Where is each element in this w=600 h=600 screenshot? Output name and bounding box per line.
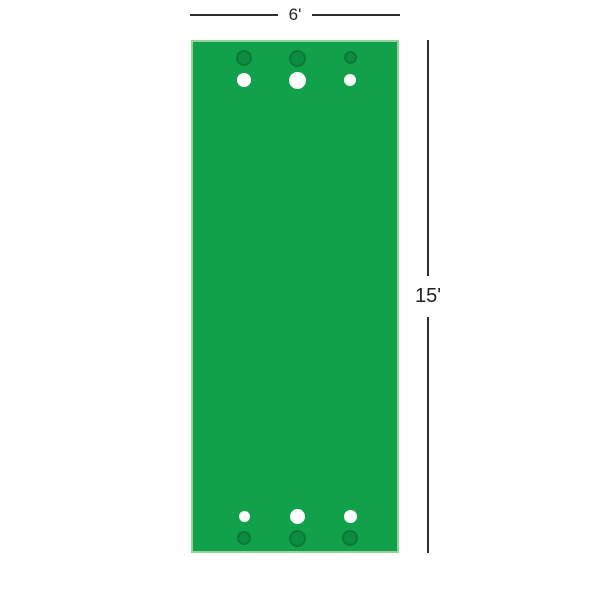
diagram-canvas: 6' 15' xyxy=(0,0,600,600)
cup-hole xyxy=(289,50,306,67)
dimension-line-bottom xyxy=(427,317,429,553)
height-label: 15' xyxy=(415,276,441,317)
ball-marker xyxy=(239,511,250,522)
cup-hole xyxy=(344,51,357,64)
ball-marker xyxy=(290,509,305,524)
dimension-line-right xyxy=(312,14,400,16)
height-dimension: 15' xyxy=(413,40,443,553)
ball-marker xyxy=(344,74,356,86)
ball-marker xyxy=(237,73,251,87)
putting-green-mat xyxy=(191,40,399,553)
cup-hole xyxy=(236,50,252,66)
width-label: 6' xyxy=(278,5,313,25)
ball-marker xyxy=(344,510,357,523)
cup-hole xyxy=(342,530,358,546)
width-dimension: 6' xyxy=(190,5,400,25)
dimension-line-top xyxy=(427,40,429,276)
cup-hole xyxy=(237,531,251,545)
dimension-line-left xyxy=(190,14,278,16)
cup-hole xyxy=(289,530,306,547)
ball-marker xyxy=(289,72,306,89)
